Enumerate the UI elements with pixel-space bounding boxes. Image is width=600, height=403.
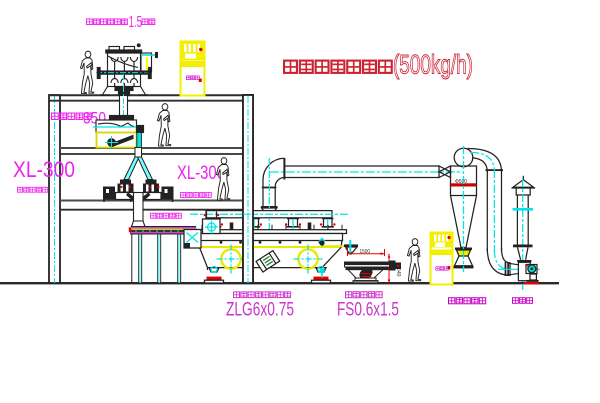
- svg-text:(500kg/h): (500kg/h): [393, 50, 473, 80]
- svg-text:1500: 1500: [360, 249, 371, 255]
- svg-text:Φ500: Φ500: [455, 179, 467, 185]
- svg-text:540: 540: [395, 268, 401, 277]
- svg-text:ZLG6x0.75: ZLG6x0.75: [226, 300, 294, 321]
- svg-text:XL-300: XL-300: [13, 157, 75, 182]
- svg-text:FS0.6x1.5: FS0.6x1.5: [337, 300, 399, 321]
- svg-text:1.5: 1.5: [129, 14, 143, 31]
